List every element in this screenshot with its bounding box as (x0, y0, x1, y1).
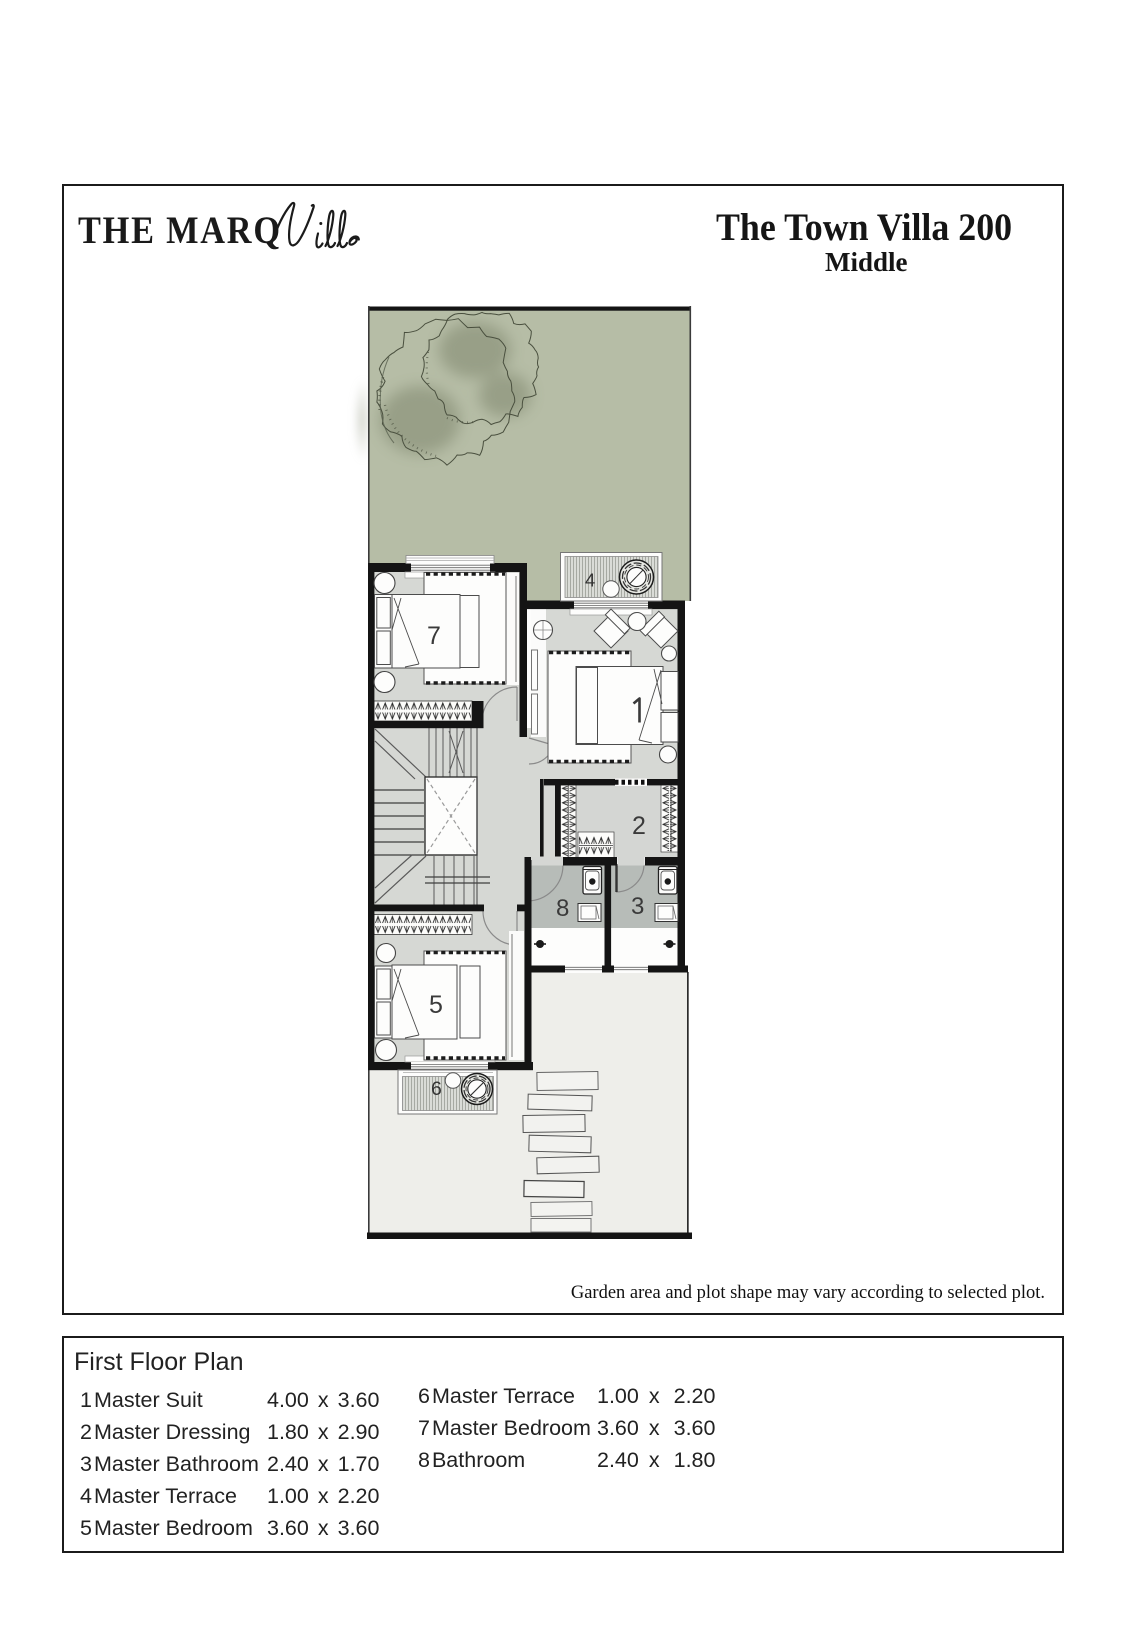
svg-text:6: 6 (431, 1078, 442, 1100)
svg-text:4: 4 (585, 570, 595, 591)
svg-text:7: 7 (427, 622, 441, 650)
svg-text:2: 2 (632, 812, 646, 840)
svg-text:3: 3 (631, 893, 644, 920)
svg-text:5: 5 (429, 991, 443, 1019)
svg-text:8: 8 (556, 895, 569, 922)
